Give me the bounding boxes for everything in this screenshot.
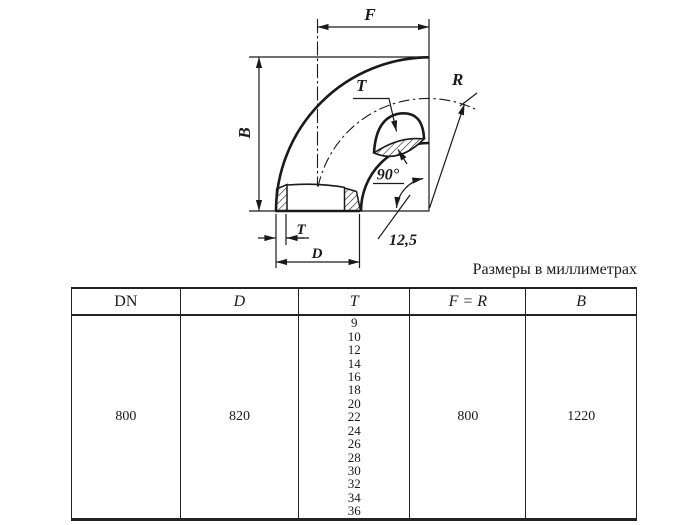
standard-document-page: F B R T 90° 12,5 <box>0 0 700 525</box>
dim-label-T-bottom: T <box>296 222 306 238</box>
dimension-D: D <box>276 246 360 262</box>
dim-label-B: B <box>235 127 254 139</box>
wall-section-detail <box>374 113 424 156</box>
dimension-R: R <box>430 70 478 208</box>
dim-label-D: D <box>311 246 323 262</box>
cell-f-r: 800 <box>409 316 525 518</box>
cell-d: 820 <box>180 316 298 518</box>
dimension-B: B <box>235 57 259 211</box>
dim-label-F: F <box>363 5 376 24</box>
table-header-row: DN D T F = R B <box>72 289 636 316</box>
cell-dn: 800 <box>72 316 180 518</box>
table-data-row: 800 820 91012141618202224262830323436 80… <box>72 316 636 518</box>
t-values-list: 91012141618202224262830323436 <box>299 316 409 518</box>
dim-label-T-section: T <box>356 76 367 95</box>
cell-t: 91012141618202224262830323436 <box>298 316 409 518</box>
left-wall-section <box>276 185 287 212</box>
dimension-F: F <box>318 5 430 27</box>
dim-label-R: R <box>451 70 463 89</box>
col-header-b: B <box>525 289 636 314</box>
dimensions-table: DN D T F = R B 800 820 91012141618202224… <box>71 287 637 521</box>
bore-edge <box>287 184 345 187</box>
right-wall-section <box>345 188 361 211</box>
dimension-T-bottom: T <box>258 222 309 238</box>
units-caption: Размеры в миллиметрах <box>473 261 637 279</box>
cell-b: 1220 <box>525 316 636 518</box>
dim-label-bevel: 12,5 <box>389 232 417 249</box>
elbow-technical-drawing: F B R T 90° 12,5 <box>0 0 700 284</box>
col-header-f-r: F = R <box>409 289 525 314</box>
col-header-dn: DN <box>72 289 180 314</box>
col-header-t: T <box>298 289 409 314</box>
dimension-angle-90: 90° <box>373 167 423 209</box>
dim-label-angle: 90° <box>377 167 400 184</box>
col-header-d: D <box>180 289 298 314</box>
